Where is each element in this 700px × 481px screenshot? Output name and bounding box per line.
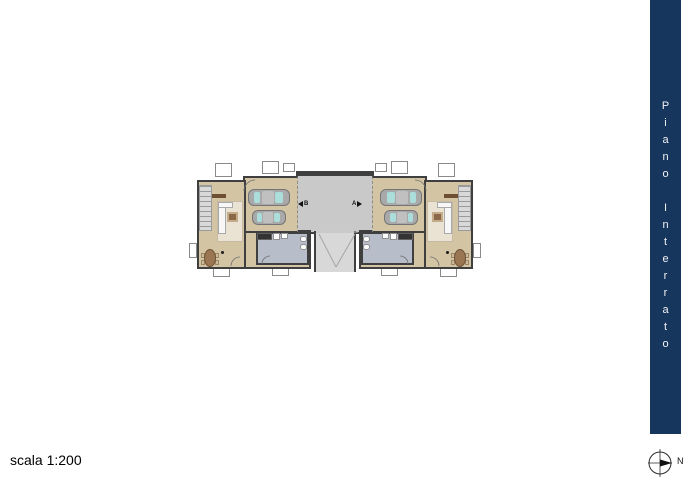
page-title: Piano Interrato [660, 0, 672, 434]
north-label: N [677, 456, 684, 466]
compass-icon [646, 448, 676, 478]
arrow-right-icon [357, 201, 362, 207]
unit-letter: A [352, 201, 356, 207]
scale-note: scala 1:200 [10, 452, 82, 468]
title-band: Piano Interrato [650, 0, 681, 434]
arrow-left-icon [298, 201, 303, 207]
unit-label-b: B [298, 201, 308, 207]
unit-letter: B [304, 201, 308, 207]
floor-plan: B A [196, 163, 474, 281]
unit-label-a: A [352, 201, 362, 207]
light-well-tab [473, 243, 481, 258]
door-arcs [196, 163, 474, 281]
drawing-sheet: B A Piano Interrato scala 1:200 N [0, 0, 700, 481]
